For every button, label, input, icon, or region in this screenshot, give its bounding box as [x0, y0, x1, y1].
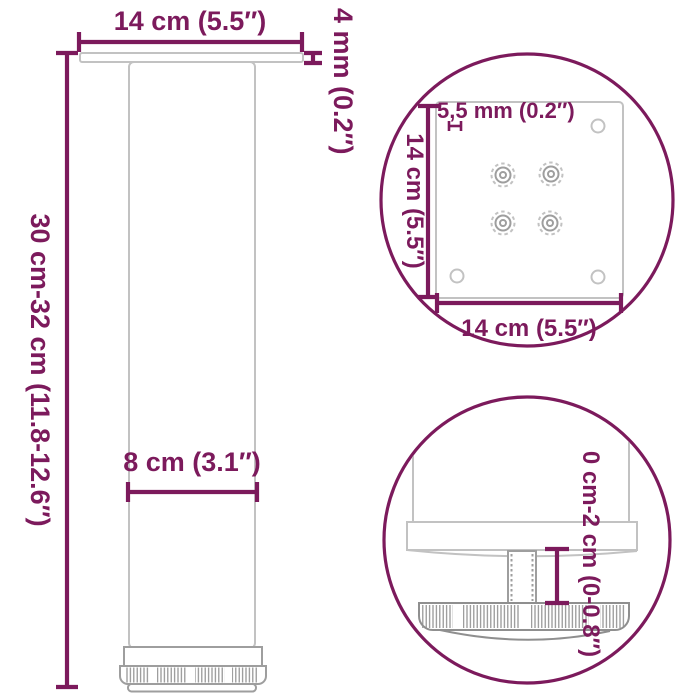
- leg-side-view: [80, 53, 303, 692]
- plate-top-width-dimension: 14 cm (5.5″): [437, 293, 621, 342]
- plate-top-view-detail: 5,5 mm (0.2″) 14 cm (5.5″) 14 cm (5.5″): [381, 54, 673, 346]
- foot-adjustment-label: 0 cm-2 cm (0-0.8″): [577, 451, 604, 657]
- foot-detail-view: 0 cm-2 cm (0-0.8″): [384, 396, 670, 683]
- plate-top-width-label: 14 cm (5.5″): [461, 315, 597, 342]
- plate-depth-label: 14 cm (5.5″): [401, 133, 428, 269]
- knurl-hatch: [157, 668, 187, 683]
- plate-thickness-dimension: 4 mm (0.2″): [304, 8, 358, 154]
- height-label: 30 cm-32 cm (11.8-12.6″): [25, 213, 55, 526]
- tube-diameter-dimension: 8 cm (3.1″): [123, 447, 261, 502]
- height-dimension: 30 cm-32 cm (11.8-12.6″): [25, 53, 78, 687]
- knurl-hatch: [195, 668, 225, 683]
- table-leg-dimension-diagram: 14 cm (5.5″) 4 mm (0.2″) 30 cm-32 cm (11…: [0, 0, 700, 700]
- plate-width-label: 14 cm (5.5″): [114, 6, 267, 36]
- plate-width-dimension: 14 cm (5.5″): [79, 6, 302, 52]
- foot-collar: [124, 647, 262, 666]
- knurl-hatch: [232, 668, 258, 683]
- plate-depth-dimension: 14 cm (5.5″): [401, 106, 439, 297]
- mounting-plate-side: [80, 53, 303, 62]
- tube-diameter-label: 8 cm (3.1″): [123, 447, 261, 477]
- plate-thickness-label: 4 mm (0.2″): [328, 8, 358, 154]
- hole-diameter-label: 5,5 mm (0.2″): [437, 98, 575, 123]
- knurl-hatch: [463, 605, 520, 628]
- leg-tube: [129, 62, 255, 648]
- diagram-svg: 14 cm (5.5″) 4 mm (0.2″) 30 cm-32 cm (11…: [0, 0, 700, 700]
- knurl-hatch: [126, 668, 150, 683]
- knurl-hatch: [422, 605, 453, 628]
- foot-base-disc: [128, 684, 256, 692]
